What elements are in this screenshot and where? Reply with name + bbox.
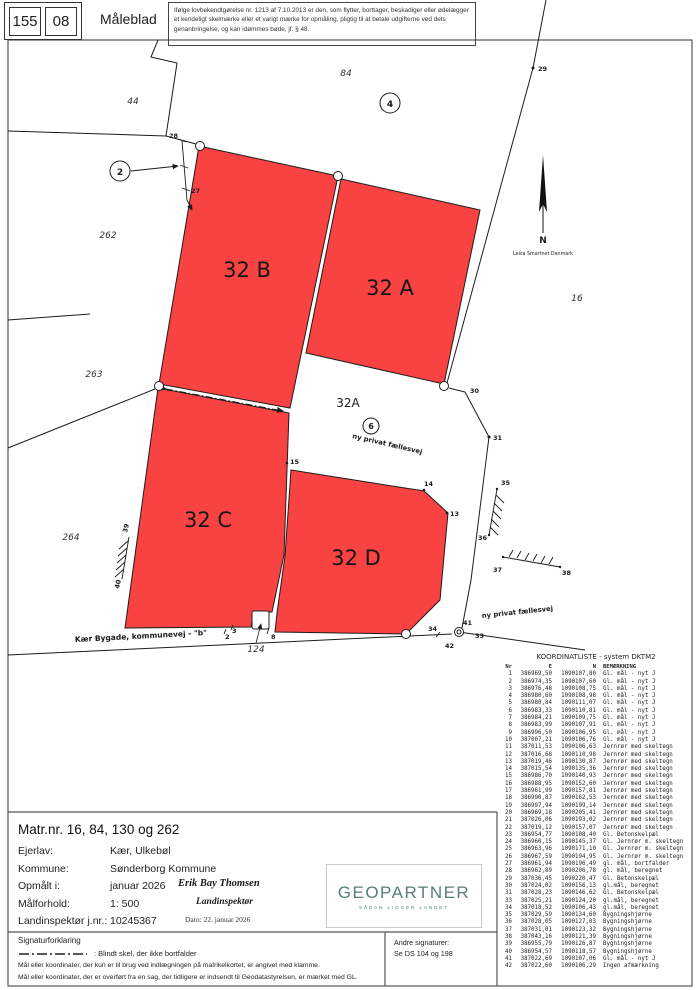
coordinate-row: 23386954,771090108,40Gl. Betonskelpæl <box>500 832 692 839</box>
parcel-32A-label: 32 A <box>366 276 414 300</box>
building-hatch-39-40 <box>115 537 129 579</box>
dimension-lines <box>131 141 192 210</box>
coordinate-row: 31387028,231090146,62Gl. Betonskelpæl <box>500 890 692 897</box>
coordinate-row: 30387024,021090156,13gl.mål, beregnet <box>500 883 692 890</box>
coordinate-row: 29387036,451090220,47Gl. Betonskelpæl <box>500 876 692 883</box>
info-row: Landinspektør j.nr.:10245367 <box>18 915 157 927</box>
blind-skel-symbol <box>18 951 88 957</box>
building-hatch-35-36 <box>489 489 504 535</box>
coordinate-row: 25386963,961090171,10Gl. Jernrør m. skel… <box>500 846 692 853</box>
info-label: Landinspektør j.nr.: <box>18 915 110 927</box>
info-value: 1: 500 <box>110 898 139 910</box>
coordinate-row: 38387043,161090121,39Bygningshjørne <box>500 934 692 941</box>
coordinate-row: 10387007,211090106,76Gl. mål - nyt J <box>500 737 692 744</box>
building-hatch-37-38 <box>503 550 560 567</box>
coordinate-row: 34387018,521090106,43gl.mål, beregnet <box>500 905 692 912</box>
parcel-32D-label: 32 D <box>331 546 381 570</box>
coordinate-row: 21387026,061090193,02Jernrør med skelteg… <box>500 817 692 824</box>
faellesvej-right-label: ny privat fællesvej <box>481 605 553 620</box>
circled-2: 2 <box>117 168 123 178</box>
point-33: 33 <box>475 632 484 640</box>
circled-6: 6 <box>368 422 374 431</box>
coordinate-list-header: Nr E N BEMÆRKNING <box>500 664 692 671</box>
coordinate-row: 33387025,211090124,20gl.mål, beregnet <box>500 898 692 905</box>
coordinate-row: 6386983,331090110,81Gl. mål - nyt J <box>500 708 692 715</box>
point-28: 28 <box>169 132 179 140</box>
point-35: 35 <box>501 479 511 487</box>
coordinate-row: 28386962,891090206,78gl. mål, beregnet <box>500 868 692 875</box>
coordinate-row: 13387019,461090130,87Jernrør med skelteg… <box>500 759 692 766</box>
coordinate-row: 22387019,121090157,07Jernrør med skelteg… <box>500 825 692 832</box>
coordinate-row: 19386997,941090199,14Jernrør med skelteg… <box>500 803 692 810</box>
faellesvej-mid-label: ny privat fællesvej <box>352 432 424 456</box>
coordinate-row: 39386955,791090126,87Bygningshjørne <box>500 941 692 948</box>
coordinate-row: 42387022,601090106,29Ingen afmærkning <box>500 963 692 970</box>
coordinate-row: 26386967,591090194,95Gl. Jernrør m. skel… <box>500 854 692 861</box>
coordinate-row: 1386969,501090107,80Gl. mål - nyt J <box>500 671 692 678</box>
coordinate-row: 17386961,991090157,81Jernrør med skelteg… <box>500 788 692 795</box>
point-13: 13 <box>450 510 459 518</box>
coordinate-row: 35387029,591090134,60Bygningshjørne <box>500 912 692 919</box>
matr-264: 264 <box>62 533 79 543</box>
info-value: januar 2026 <box>110 880 165 892</box>
col-nr: Nr <box>500 664 512 671</box>
journal-stamp-box: 155 08 <box>4 2 82 40</box>
coordinate-row: 16386988,951090152,60Jernrør med skelteg… <box>500 781 692 788</box>
coordinate-row: 2386974,351090107,60Gl. mål - nyt J <box>500 679 692 686</box>
point-31: 31 <box>493 434 503 442</box>
coordinate-row: 5386980,841090111,07Gl. mål - nyt J <box>500 700 692 707</box>
point-39: 39 <box>121 522 131 533</box>
info-value: 10245367 <box>110 915 157 927</box>
point-29: 29 <box>538 65 548 73</box>
legend-line2: Mål eller koordinater, der er overført f… <box>18 974 358 981</box>
col-n: N <box>552 664 596 671</box>
legend-blind-skel-text: : Blindt skel, der ikke bortfalder <box>94 949 197 958</box>
coordinate-row: 7386984,211090109,75Gl. mål - nyt J <box>500 715 692 722</box>
coordinate-list-title: KOORDINATLISTE - system DKTM2 <box>500 653 692 661</box>
north-label: N <box>539 236 547 246</box>
geopartner-logo: GEOPARTNER SÅDAN LIGGER LANDET <box>326 864 482 928</box>
point-38: 38 <box>562 569 572 577</box>
info-value: Kær, Ulkebøl <box>110 845 171 857</box>
matr-84: 84 <box>340 69 352 79</box>
col-e: E <box>512 664 552 671</box>
info-row: Kommune:Sønderborg Kommune <box>18 863 216 875</box>
point-2: 2 <box>225 633 230 641</box>
matr-124: 124 <box>247 645 264 655</box>
document-title: Måleblad <box>100 11 157 27</box>
parcel-32C-label: 32 C <box>184 508 232 532</box>
logo-text: GEOPARTNER <box>338 883 470 903</box>
info-label: Målforhold: <box>18 898 110 910</box>
point-41: 41 <box>463 619 473 627</box>
other-signatures-title: Andre signaturer: <box>394 938 449 947</box>
point-34: 34 <box>428 625 438 633</box>
maaleblad-sheet: 2 4 6 N Leica Smartnet Danmark <box>0 0 700 990</box>
stamp-right-cell: 08 <box>45 7 77 36</box>
coordinate-row: 4386980,601090108,98Gl. mål - nyt J <box>500 693 692 700</box>
info-label: Ejerlav: <box>18 845 110 857</box>
matr-44: 44 <box>127 97 139 107</box>
coordinate-row: 18386990,871090162,53Jernrør med skelteg… <box>500 795 692 802</box>
coordinate-row: 12387016,681090110,98Jernrør med skelteg… <box>500 752 692 759</box>
coordinate-row: 40386954,571090118,57Bygningshjørne <box>500 949 692 956</box>
legend-title: Signaturforklaring <box>18 936 81 945</box>
point-14: 14 <box>424 480 434 488</box>
other-signatures-value: Se DS 104 og 198 <box>394 949 453 958</box>
coordinate-row: 36387028,051090127,03Bygningshjørne <box>500 919 692 926</box>
point-40: 40 <box>113 578 123 589</box>
point-37: 37 <box>493 566 502 574</box>
coordinate-row: 27386961,941090196,49gl. mål, bortfalder <box>500 861 692 868</box>
coordinate-row: 9386996,501090106,95Gl. mål - nyt J <box>500 730 692 737</box>
street-label: Kær Bygade, kommunevej - "b" <box>75 628 208 644</box>
point-30: 30 <box>470 387 480 395</box>
coordinate-row: 24386960,151090145,37Gl. Jernrør m. skel… <box>500 839 692 846</box>
circled-4: 4 <box>387 100 393 110</box>
coordinate-row: 14387015,541090135,36Jernrør med skelteg… <box>500 766 692 773</box>
coordinate-rows: 1386969,501090107,80Gl. mål - nyt J23869… <box>500 671 692 970</box>
surveyor-title: Landinspektør <box>196 897 253 907</box>
info-row: Ejerlav:Kær, Ulkebøl <box>18 845 171 857</box>
info-value: Sønderborg Kommune <box>110 863 216 875</box>
point-3: 3 <box>232 627 237 635</box>
point-8: 8 <box>271 633 276 641</box>
matr-16: 16 <box>571 294 583 304</box>
coordinate-row: 8386983,991090107,91Gl. mål - nyt J <box>500 722 692 729</box>
point-15: 15 <box>290 458 300 466</box>
legal-notice: Ifølge lovbekendtgørelse nr. 1213 af 7.1… <box>168 2 476 46</box>
info-row: Målforhold:1: 500 <box>18 898 139 910</box>
legend-line1: Mål eller koordinater, der kun er til br… <box>18 962 320 969</box>
parcels <box>125 146 480 634</box>
info-label: Opmålt i: <box>18 880 110 892</box>
coordinate-row: 3386976,481090108,75Gl. mål - nyt J <box>500 686 692 693</box>
info-label: Kommune: <box>18 863 110 875</box>
survey-date: Dato: 22. januar 2026 <box>185 915 250 924</box>
surveyor-name: Erik Bay Thomsen <box>178 878 260 889</box>
coordinate-row: 41387022,691090107,06Gl. mål - nyt J <box>500 956 692 963</box>
info-row: Opmålt i:januar 2026 <box>18 880 165 892</box>
coordinate-row: 15386986,701090140,93Jernrør med skelteg… <box>500 773 692 780</box>
road-parcel-label: 32A <box>336 396 360 410</box>
coordinate-row: 11387011,531090106,63Jernrør med skelteg… <box>500 744 692 751</box>
stamp-left-cell: 155 <box>9 7 41 36</box>
matr-nr-line: Matr.nr. 16, 84, 130 og 262 <box>18 822 179 837</box>
legend-blind-skel-row: : Blindt skel, der ikke bortfalder <box>18 949 197 958</box>
point-27: 27 <box>191 187 200 195</box>
north-arrow: N Leica Smartnet Danmark <box>513 155 573 257</box>
coordinate-list: KOORDINATLISTE - system DKTM2 Nr E N BEM… <box>500 653 692 970</box>
matr-263: 263 <box>85 370 102 380</box>
point-36: 36 <box>478 534 488 542</box>
matr-262: 262 <box>99 231 116 241</box>
point-42: 42 <box>445 642 454 650</box>
north-source-label: Leica Smartnet Danmark <box>513 251 573 257</box>
logo-tagline: SÅDAN LIGGER LANDET <box>359 905 449 910</box>
coordinate-row: 37387031,011090123,32Bygningshjørne <box>500 927 692 934</box>
coordinate-row: 20386969,181090205,41Jernrør med skelteg… <box>500 810 692 817</box>
parcel-32B-label: 32 B <box>223 258 271 282</box>
